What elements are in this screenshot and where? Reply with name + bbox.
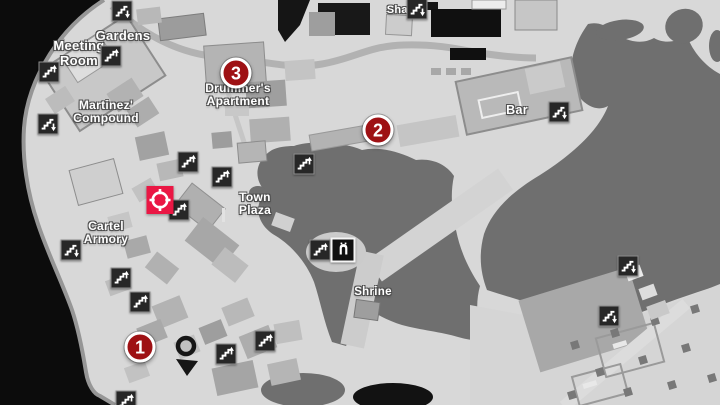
map-terrain[interactable]	[0, 0, 720, 405]
game-map-screenshot: GardensMeeting RoomMartinez' CompoundDru…	[0, 0, 720, 405]
